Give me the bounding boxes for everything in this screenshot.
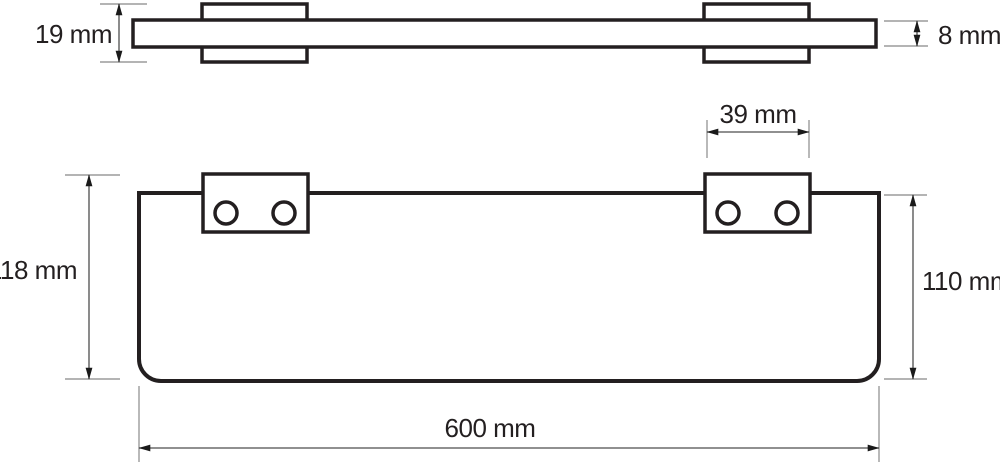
- dimension-label-19mm: 19 mm: [35, 19, 112, 49]
- screw-hole: [776, 202, 798, 224]
- dimension-19mm: 19 mm: [35, 4, 147, 62]
- dimension-39mm: 39 mm: [707, 99, 809, 158]
- front-view-bracket-left: [203, 174, 308, 232]
- dimension-600mm: 600 mm: [139, 386, 879, 462]
- screw-hole: [717, 202, 739, 224]
- dimension-label-110mm: 110 mm: [922, 266, 1000, 296]
- dimension-label-600mm: 600 mm: [445, 413, 536, 443]
- dimension-label-118mm: 118 mm: [0, 255, 77, 285]
- technical-drawing-canvas: 19 mm 8 mm 39 mm: [0, 0, 1000, 462]
- screw-hole: [273, 202, 295, 224]
- top-view-shelf-bar: [133, 20, 876, 47]
- dimension-label-8mm: 8 mm: [938, 20, 1000, 50]
- front-view: 39 mm 118 mm 110 mm 600 mm: [0, 99, 1000, 462]
- top-view: 19 mm 8 mm: [35, 4, 1000, 62]
- shelf-drawing-svg: 19 mm 8 mm 39 mm: [0, 0, 1000, 462]
- dimension-110mm: 110 mm: [884, 195, 1000, 379]
- dimension-118mm: 118 mm: [0, 175, 120, 379]
- dimension-8mm: 8 mm: [884, 20, 1000, 50]
- dimension-label-39mm: 39 mm: [720, 99, 797, 129]
- front-view-bracket-right: [705, 174, 810, 232]
- screw-hole: [215, 202, 237, 224]
